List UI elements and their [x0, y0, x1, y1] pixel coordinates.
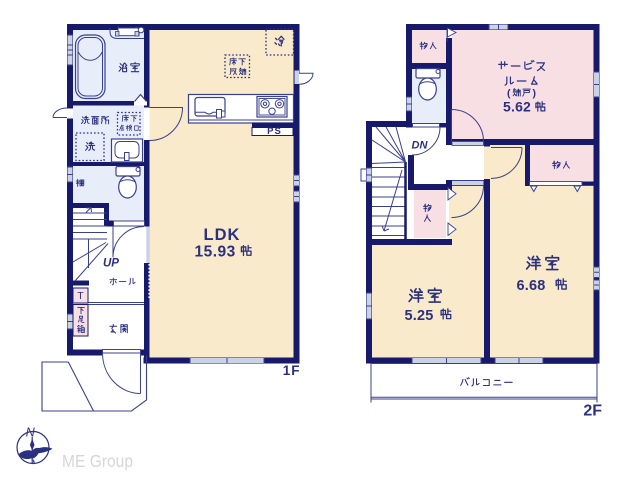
svg-text:6.68: 6.68	[517, 278, 546, 294]
svg-text:5.62: 5.62	[503, 99, 531, 115]
svg-text:T: T	[77, 290, 84, 302]
svg-text:ME Group: ME Group	[62, 451, 133, 471]
svg-text:N: N	[26, 426, 36, 440]
svg-text:1F: 1F	[283, 363, 301, 378]
svg-text:UP: UP	[103, 258, 119, 270]
svg-text:15.93: 15.93	[195, 244, 236, 261]
svg-text:5.25: 5.25	[405, 308, 434, 324]
svg-text:): )	[533, 88, 537, 100]
svg-text:DN: DN	[412, 140, 429, 152]
svg-text:2F: 2F	[583, 403, 602, 420]
svg-text:LDK: LDK	[204, 226, 241, 244]
svg-text:PS: PS	[267, 126, 282, 137]
